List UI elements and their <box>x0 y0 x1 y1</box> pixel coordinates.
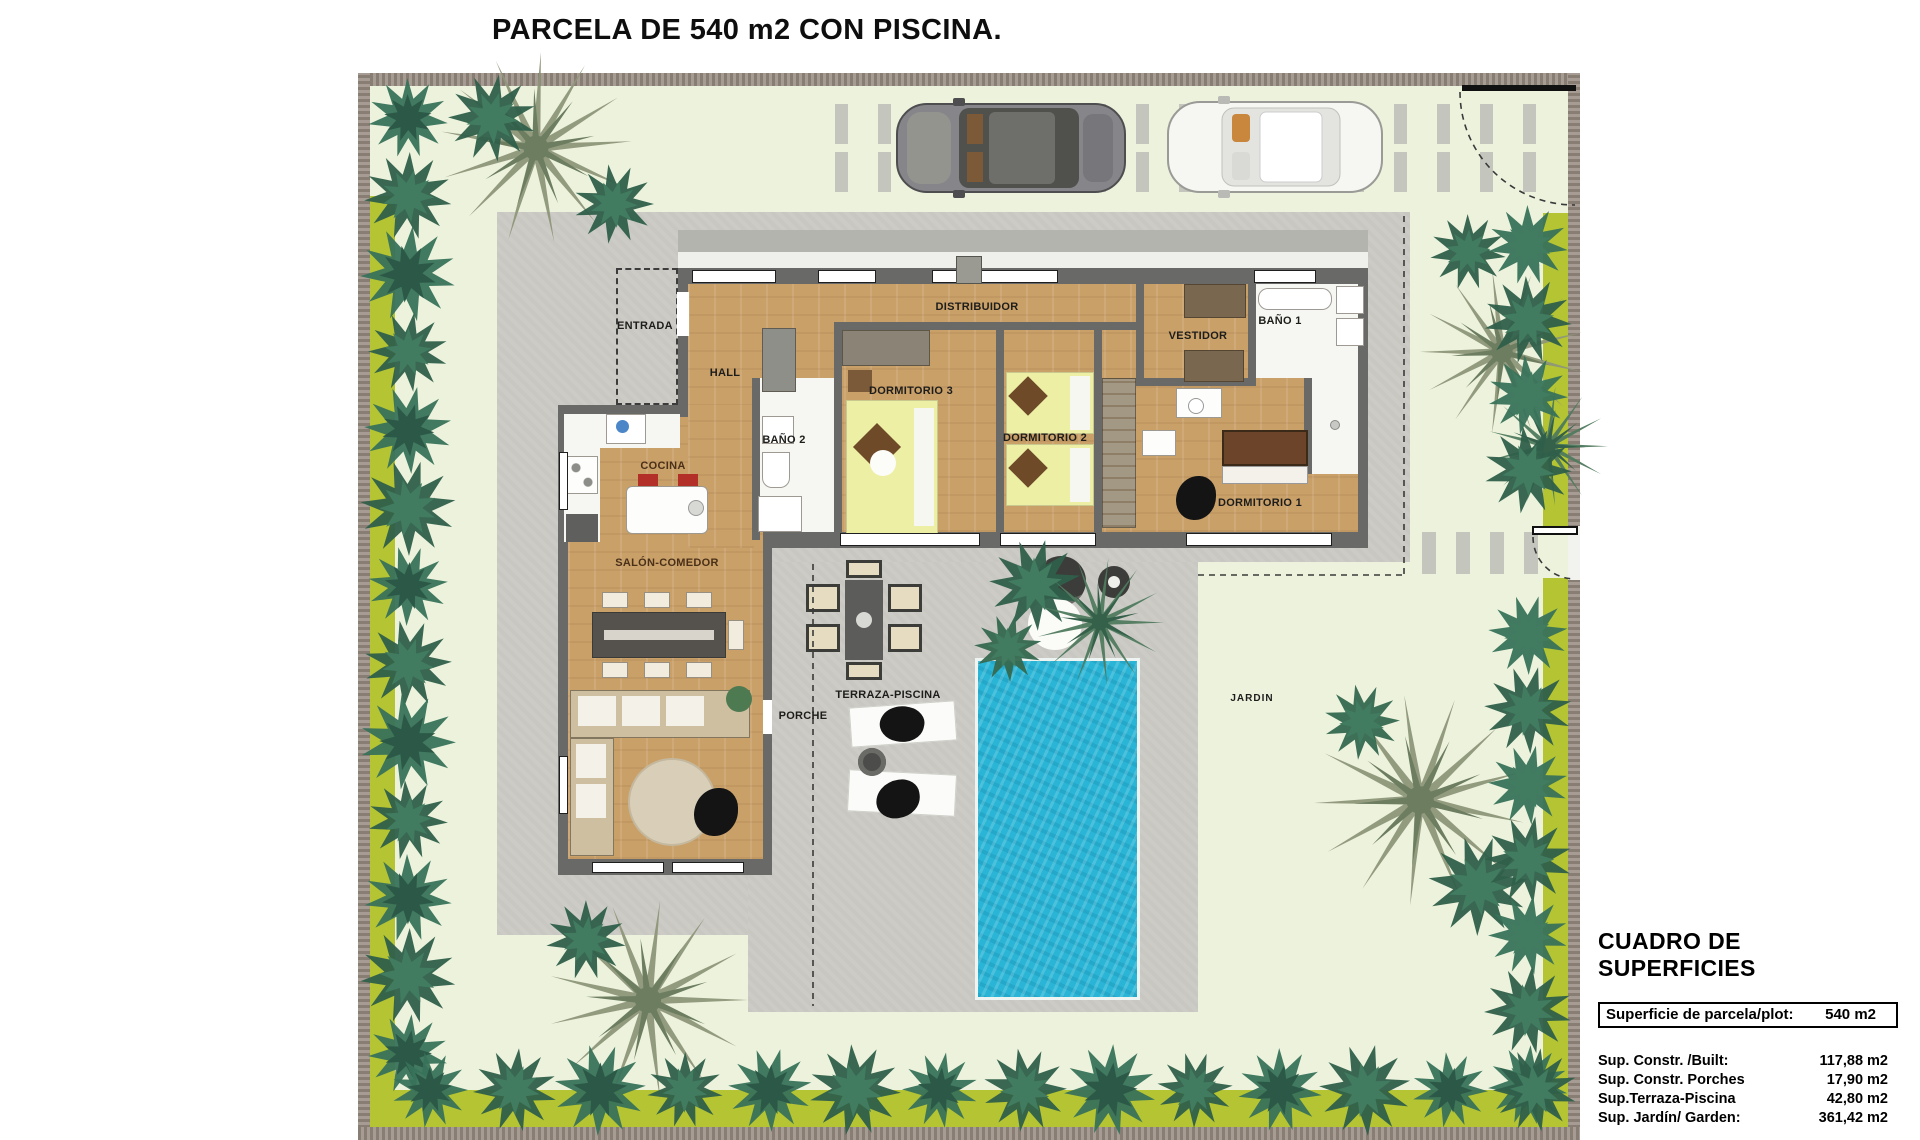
room-label-terraza: TERRAZA-PISCINA <box>826 689 950 701</box>
summary-row-value: 17,90 m2 <box>1827 1071 1888 1090</box>
summary-plot-row: Superficie de parcela/plot: 540 m2 <box>1598 1002 1898 1028</box>
room-label-dormitorio3: DORMITORIO 3 <box>855 385 967 397</box>
car-gray <box>897 98 1125 198</box>
room-label-dormitorio2: DORMITORIO 2 <box>989 432 1101 444</box>
summary-row: Sup. Constr. /Built: 117,88 m2 <box>1598 1052 1898 1071</box>
car-white <box>1168 96 1382 198</box>
bush <box>364 152 451 239</box>
summary-row: Sup. Constr. Porches 17,90 m2 <box>1598 1071 1898 1090</box>
bush <box>974 615 1041 682</box>
pedestrian-gate-swing-arc <box>1533 537 1575 579</box>
summary-row-value: 42,80 m2 <box>1827 1090 1888 1109</box>
summary-row-label: Sup.Terraza-Piscina <box>1598 1090 1736 1109</box>
bush <box>1484 667 1571 754</box>
bush <box>1239 1048 1322 1131</box>
bush <box>364 387 451 474</box>
bush <box>576 164 654 243</box>
bush <box>368 313 447 392</box>
bush <box>1488 895 1567 974</box>
bush <box>365 854 452 941</box>
room-label-distribuidor: DISTRIBUIDOR <box>922 301 1032 313</box>
summary-rows: Sup. Constr. /Built: 117,88 m2 Sup. Cons… <box>1598 1052 1898 1128</box>
bush <box>989 540 1080 631</box>
summary-row-label: Sup. Jardín/ Garden: <box>1598 1109 1741 1128</box>
summary-row-value: 117,88 m2 <box>1819 1052 1888 1071</box>
bush <box>902 1053 977 1128</box>
bush <box>1158 1053 1233 1128</box>
summary-row: Sup.Terraza-Piscina 42,80 m2 <box>1598 1090 1898 1109</box>
bush <box>1319 1045 1410 1136</box>
floor-plan-canvas: PARCELA DE 540 m2 CON PISCINA. ENTRADA H… <box>0 0 1920 1140</box>
bush <box>1488 746 1567 825</box>
room-label-vestidor: VESTIDOR <box>1158 330 1238 342</box>
bush <box>1489 205 1568 284</box>
room-label-dormitorio1: DORMITORIO 1 <box>1204 497 1316 509</box>
bush <box>984 1049 1067 1132</box>
bush <box>369 78 448 157</box>
palm-tree <box>1420 271 1582 434</box>
room-label-hall: HALL <box>700 367 750 379</box>
summary-heading: CUADRO DE SUPERFICIES <box>1598 928 1898 982</box>
summary-row-label: Sup. Constr. Porches <box>1598 1071 1745 1090</box>
bush <box>360 462 455 556</box>
room-label-salon: SALÓN-COMEDOR <box>605 557 729 569</box>
room-label-jardin: JARDIN <box>1222 693 1282 704</box>
room-label-cocina: COCINA <box>630 460 696 472</box>
summary-row: Sup. Jardín/ Garden: 361,42 m2 <box>1598 1109 1898 1128</box>
bush <box>360 928 455 1023</box>
car-gate-swing-arc <box>1460 92 1575 205</box>
trees-and-bushes <box>360 52 1608 1136</box>
bush <box>728 1049 811 1132</box>
summary-row-value: 361,42 m2 <box>1819 1109 1888 1128</box>
bush <box>1484 966 1571 1053</box>
bush <box>555 1045 646 1136</box>
bush <box>362 694 456 789</box>
summary-plot-value: 540 m2 <box>1825 1006 1890 1023</box>
summary-row-label: Sup. Constr. /Built: <box>1598 1052 1729 1071</box>
bush <box>1064 1044 1155 1135</box>
room-label-entrada: ENTRADA <box>612 320 678 332</box>
room-label-bano1: BAÑO 1 <box>1248 315 1312 327</box>
bush <box>369 780 448 859</box>
bush <box>473 1048 556 1131</box>
bush <box>1488 596 1567 675</box>
bush <box>365 621 452 708</box>
bush <box>810 1044 901 1135</box>
bush <box>360 226 455 321</box>
bush <box>1325 685 1400 760</box>
surface-summary-panel: CUADRO DE SUPERFICIES Superficie de parc… <box>1598 928 1898 1140</box>
room-label-porche: PORCHE <box>769 710 837 722</box>
page-title: PARCELA DE 540 m2 CON PISCINA. <box>492 14 1002 47</box>
bush <box>369 547 448 626</box>
bush <box>1413 1052 1488 1127</box>
summary-plot-label: Superficie de parcela/plot: <box>1606 1006 1794 1023</box>
room-label-bano2: BAÑO 2 <box>752 434 816 446</box>
